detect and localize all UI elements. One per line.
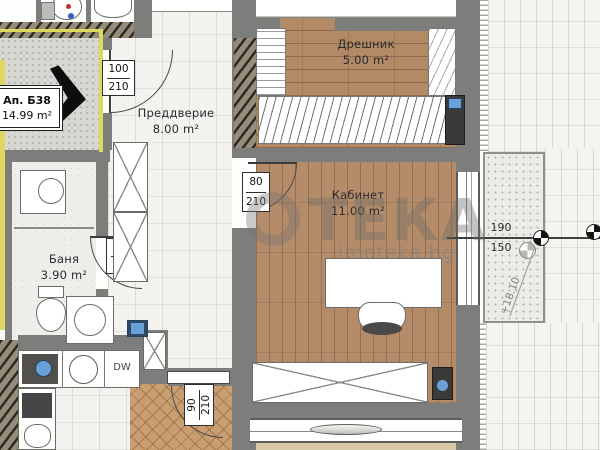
dimension-line	[447, 237, 600, 239]
closet-shelf-right	[428, 28, 456, 96]
cold-water-dot	[68, 13, 74, 19]
kitchen-hob-burner	[35, 360, 52, 377]
vestibule-area: 8.00 m²	[153, 122, 199, 136]
door-entry-dim-label: 100 210	[102, 60, 135, 96]
closet-shelf-left	[256, 28, 286, 96]
label-closet: Дрешник 5.00 m²	[316, 37, 416, 68]
insulation-top-right	[479, 0, 488, 151]
wall-entry-stub-lower	[103, 113, 112, 150]
wall-top-divider-2	[86, 0, 91, 22]
floor-plan: 100 210 80 210 80 210 90 210	[0, 0, 600, 450]
wall-entry-stub-upper	[103, 38, 112, 50]
closet-hanging-rail	[258, 96, 456, 144]
door-office-width: 80	[249, 177, 262, 188]
kitchen-dishwasher-label: DW	[106, 362, 138, 373]
label-vestibule: Преддверие 8.00 m²	[126, 106, 226, 137]
label-bath: Баня 3.90 m²	[16, 252, 112, 283]
door-hall-dim-label: 90 210	[184, 384, 214, 426]
valve-box	[41, 2, 55, 20]
vestibule-name: Преддверие	[138, 106, 215, 120]
exterior-tiles-bottom-right	[486, 323, 600, 450]
kitchen-sink	[69, 355, 98, 384]
kitchen-oven	[22, 393, 52, 418]
apartment-label: Ап. Б38 14.99 m²	[0, 88, 60, 128]
door-hall-leaf	[167, 371, 230, 384]
boundary-line-top	[0, 29, 103, 32]
closet-top-band	[256, 0, 456, 18]
door-hall-height: 210	[201, 395, 212, 415]
wall-bath-left	[5, 150, 12, 340]
wall-bath-right-upper	[96, 162, 108, 237]
wall-bath-top	[0, 150, 110, 162]
door-office-height: 210	[246, 197, 266, 208]
kitchen-fixture	[24, 424, 51, 448]
vestibule-cabinet-lower	[113, 212, 148, 282]
bath-sink-basin	[74, 304, 106, 336]
riser-chip	[448, 98, 462, 109]
office-area: 11.00 m²	[331, 204, 385, 218]
label-office: Кабинет 11.00 m²	[308, 188, 408, 219]
washing-machine-drum	[38, 178, 64, 204]
door-entry-height: 210	[108, 82, 128, 93]
sink-symbol-top	[94, 0, 132, 18]
closet-area: 5.00 m²	[343, 53, 389, 67]
office-wardrobe	[252, 362, 428, 403]
closet-name: Дрешник	[337, 37, 394, 51]
exterior-tiles-top-right	[488, 0, 600, 152]
survey-marker-1	[533, 230, 549, 246]
kitchen-counter-divider-2	[104, 350, 105, 388]
hall-shaft-box	[143, 332, 166, 370]
bath-name: Баня	[49, 252, 79, 266]
toilet-tank	[38, 286, 64, 298]
window-handle-lens	[310, 424, 382, 435]
wall-hatched-vestibule-right	[234, 38, 256, 150]
window-dim-height: 150	[484, 241, 518, 254]
bath-corner-chip-inner	[131, 323, 144, 334]
apartment-area: 14.99 m²	[2, 108, 52, 123]
kitchen-counter-divider-1	[62, 350, 63, 388]
office-desk	[325, 258, 442, 308]
office-ac-fan	[437, 380, 448, 391]
wall-below-closet	[232, 148, 480, 162]
window-dim-width: 190	[484, 221, 518, 234]
shaft-band-top	[152, 0, 232, 12]
wall-top-corner	[134, 0, 152, 38]
bath-area: 3.90 m²	[41, 268, 87, 282]
bath-counter-line	[14, 227, 94, 229]
door-office-dim-label: 80 210	[242, 172, 270, 212]
window-office-east	[456, 172, 480, 305]
office-name: Кабинет	[332, 188, 384, 202]
vestibule-cabinet-upper	[113, 142, 148, 212]
apartment-id: Ап. Б38	[3, 93, 51, 108]
hot-water-dot	[66, 4, 71, 9]
ground-band-bottom	[232, 443, 482, 450]
survey-marker-2	[586, 224, 600, 240]
door-entry-width: 100	[108, 64, 128, 75]
office-chair-back	[362, 322, 402, 335]
door-hall-width: 90	[187, 398, 198, 411]
wall-below-office	[232, 403, 480, 418]
wall-hatched-bottom-left	[0, 340, 18, 450]
